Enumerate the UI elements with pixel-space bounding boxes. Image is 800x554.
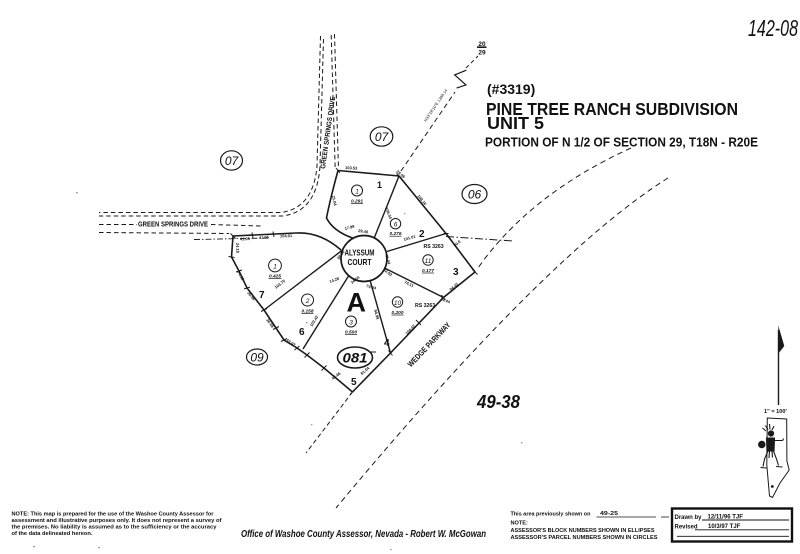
svg-text:10/3/97 TJF: 10/3/97 TJF <box>708 524 741 530</box>
svg-text:7: 7 <box>259 290 265 301</box>
svg-text:07: 07 <box>375 130 390 144</box>
svg-text:NOTE: This map is prepared for: NOTE: This map is prepared for the use o… <box>12 512 215 518</box>
svg-text:ASSESSOR'S BLOCK NUMBERS SHOWN: ASSESSOR'S BLOCK NUMBERS SHOWN IN ELLIPS… <box>511 528 655 534</box>
svg-text:1: 1 <box>273 264 277 271</box>
svg-text:Office of Washoe County Assess: Office of Washoe County Assessor, Nevada… <box>241 528 486 540</box>
svg-text:24.18: 24.18 <box>235 243 241 254</box>
svg-text:142-08: 142-08 <box>748 15 798 41</box>
svg-text:1: 1 <box>377 180 382 190</box>
svg-text:103.53: 103.53 <box>345 165 358 171</box>
svg-text:NOTE:: NOTE: <box>511 521 529 527</box>
svg-text:2: 2 <box>305 298 310 305</box>
svg-text:Revised: Revised <box>675 525 698 531</box>
svg-text:COURT: COURT <box>348 257 373 267</box>
svg-text:49-25: 49-25 <box>600 511 618 517</box>
svg-text:41.05: 41.05 <box>240 236 251 242</box>
svg-text:29: 29 <box>478 50 486 57</box>
svg-text:the premises. No liability is: the premises. No liability is assumed as… <box>12 525 217 531</box>
svg-text:PORTION OF N 1/2 OF SECTION 29: PORTION OF N 1/2 OF SECTION 29, T18N - R… <box>485 136 758 150</box>
svg-text:This area previously shown on: This area previously shown on <box>511 512 592 518</box>
svg-text:1" = 100': 1" = 100' <box>764 409 787 415</box>
svg-text:4: 4 <box>384 338 390 349</box>
svg-text:06: 06 <box>468 188 482 202</box>
svg-text:6: 6 <box>394 222 398 229</box>
svg-text:GREEN SPRINGS DRIVE: GREEN SPRINGS DRIVE <box>138 222 208 229</box>
svg-text:081: 081 <box>343 350 368 366</box>
svg-text:104.01: 104.01 <box>280 233 293 238</box>
svg-text:of the data delineated hereon.: of the data delineated hereon. <box>12 531 94 537</box>
svg-text:6: 6 <box>299 327 305 338</box>
svg-text:assessment and illustrative pu: assessment and illustrative purposes onl… <box>12 518 222 524</box>
svg-text:41.05: 41.05 <box>259 234 270 240</box>
svg-text:5: 5 <box>351 377 357 388</box>
svg-text:3: 3 <box>349 320 353 327</box>
svg-text:10: 10 <box>394 300 402 307</box>
svg-text:2: 2 <box>419 229 425 240</box>
svg-text:UNIT 5: UNIT 5 <box>487 113 544 133</box>
svg-text:49-38: 49-38 <box>476 392 520 412</box>
svg-text:11: 11 <box>425 258 432 265</box>
svg-text:(#3319): (#3319) <box>487 81 535 97</box>
svg-text:ASSESSOR'S PARCEL NUMBERS SHOW: ASSESSOR'S PARCEL NUMBERS SHOWN IN CIRCL… <box>511 535 658 541</box>
svg-text:A: A <box>347 288 367 318</box>
svg-text:RS 3263: RS 3263 <box>415 303 435 309</box>
svg-text:Drawn by: Drawn by <box>675 515 703 521</box>
svg-text:07: 07 <box>225 154 240 168</box>
svg-text:RS 3263: RS 3263 <box>424 244 444 250</box>
svg-text:3: 3 <box>453 267 459 278</box>
svg-text:1: 1 <box>355 189 359 196</box>
svg-text:09: 09 <box>250 351 264 365</box>
